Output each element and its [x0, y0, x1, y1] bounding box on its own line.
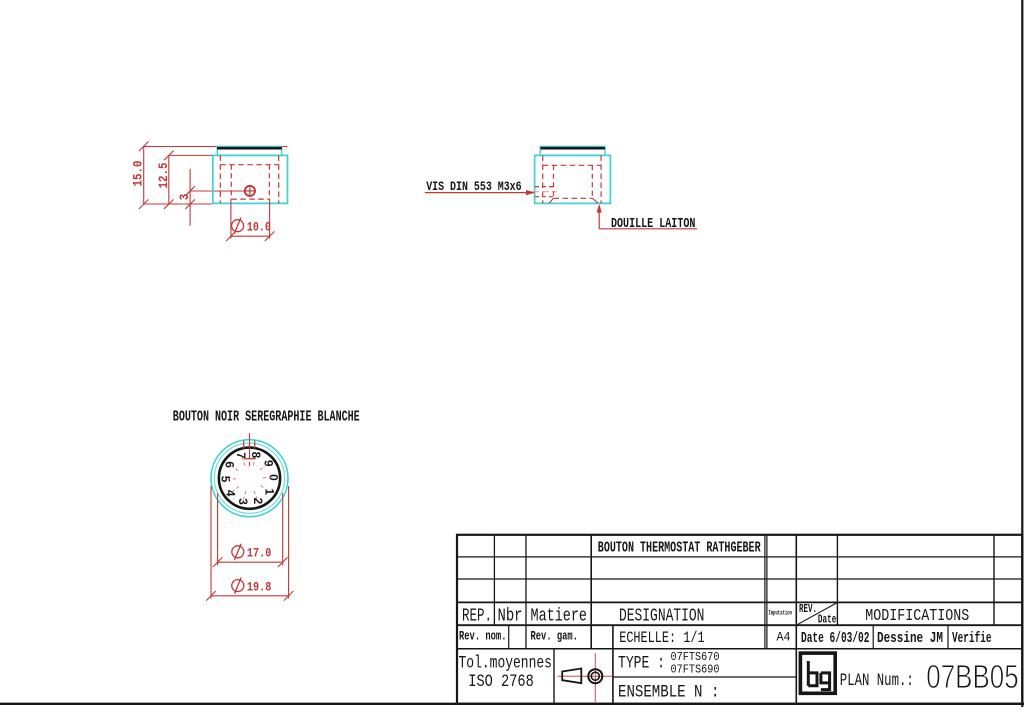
svg-text:Tol.moyennes: Tol.moyennes: [459, 653, 552, 674]
svg-text:Nbr: Nbr: [498, 606, 523, 626]
svg-text:PLAN Num.:: PLAN Num.:: [840, 671, 914, 691]
svg-text:Dessine JM: Dessine JM: [877, 630, 943, 647]
svg-text:19.8: 19.8: [247, 579, 271, 595]
svg-text:0: 0: [267, 474, 281, 481]
svg-text:9: 9: [262, 460, 276, 467]
svg-text:TYPE :: TYPE :: [618, 652, 665, 672]
svg-text:07FTS670: 07FTS670: [671, 651, 720, 664]
svg-text:07FTS690: 07FTS690: [671, 664, 720, 677]
svg-text:BOUTON NOIR SEREGRAPHIE BLANCH: BOUTON NOIR SEREGRAPHIE BLANCHE: [173, 409, 360, 425]
svg-text:Verifie: Verifie: [952, 630, 992, 647]
svg-text:Imputation: Imputation: [769, 610, 792, 617]
svg-text:DESIGNATION: DESIGNATION: [619, 605, 704, 626]
svg-text:17.0: 17.0: [247, 545, 271, 561]
svg-text:2: 2: [251, 498, 265, 505]
svg-text:BOUTON THERMOSTAT RATHGEBER: BOUTON THERMOSTAT RATHGEBER: [598, 540, 761, 556]
svg-text:07BB05: 07BB05: [926, 659, 1018, 696]
svg-text:15.0: 15.0: [131, 161, 146, 187]
svg-text:Matiere: Matiere: [531, 606, 587, 626]
svg-text:REP.: REP.: [462, 605, 492, 626]
svg-text:Rev. gam.: Rev. gam.: [531, 630, 578, 644]
svg-text:Date: Date: [818, 613, 837, 626]
svg-text:1: 1: [263, 488, 277, 495]
svg-text:4: 4: [223, 490, 237, 497]
svg-text:ENSEMBLE N :: ENSEMBLE N :: [618, 682, 719, 702]
svg-text:REV.: REV.: [799, 602, 817, 615]
svg-text:MODIFICATIONS: MODIFICATIONS: [865, 608, 969, 626]
svg-text:3: 3: [236, 498, 250, 505]
svg-text:ECHELLE: 1/1: ECHELLE: 1/1: [619, 630, 704, 648]
svg-text:Rev. nom.: Rev. nom.: [459, 630, 506, 644]
svg-text:Date 6/03/02: Date 6/03/02: [801, 630, 869, 647]
svg-text:ISO 2768: ISO 2768: [468, 672, 533, 692]
svg-text:6: 6: [222, 461, 236, 468]
svg-text:12.5: 12.5: [156, 163, 171, 189]
svg-text:10.0: 10.0: [247, 219, 271, 235]
svg-text:3: 3: [177, 194, 192, 200]
svg-text:DOUILLE LAITON: DOUILLE LAITON: [611, 216, 695, 232]
svg-text:8: 8: [249, 452, 263, 459]
svg-text:A4: A4: [777, 630, 791, 645]
